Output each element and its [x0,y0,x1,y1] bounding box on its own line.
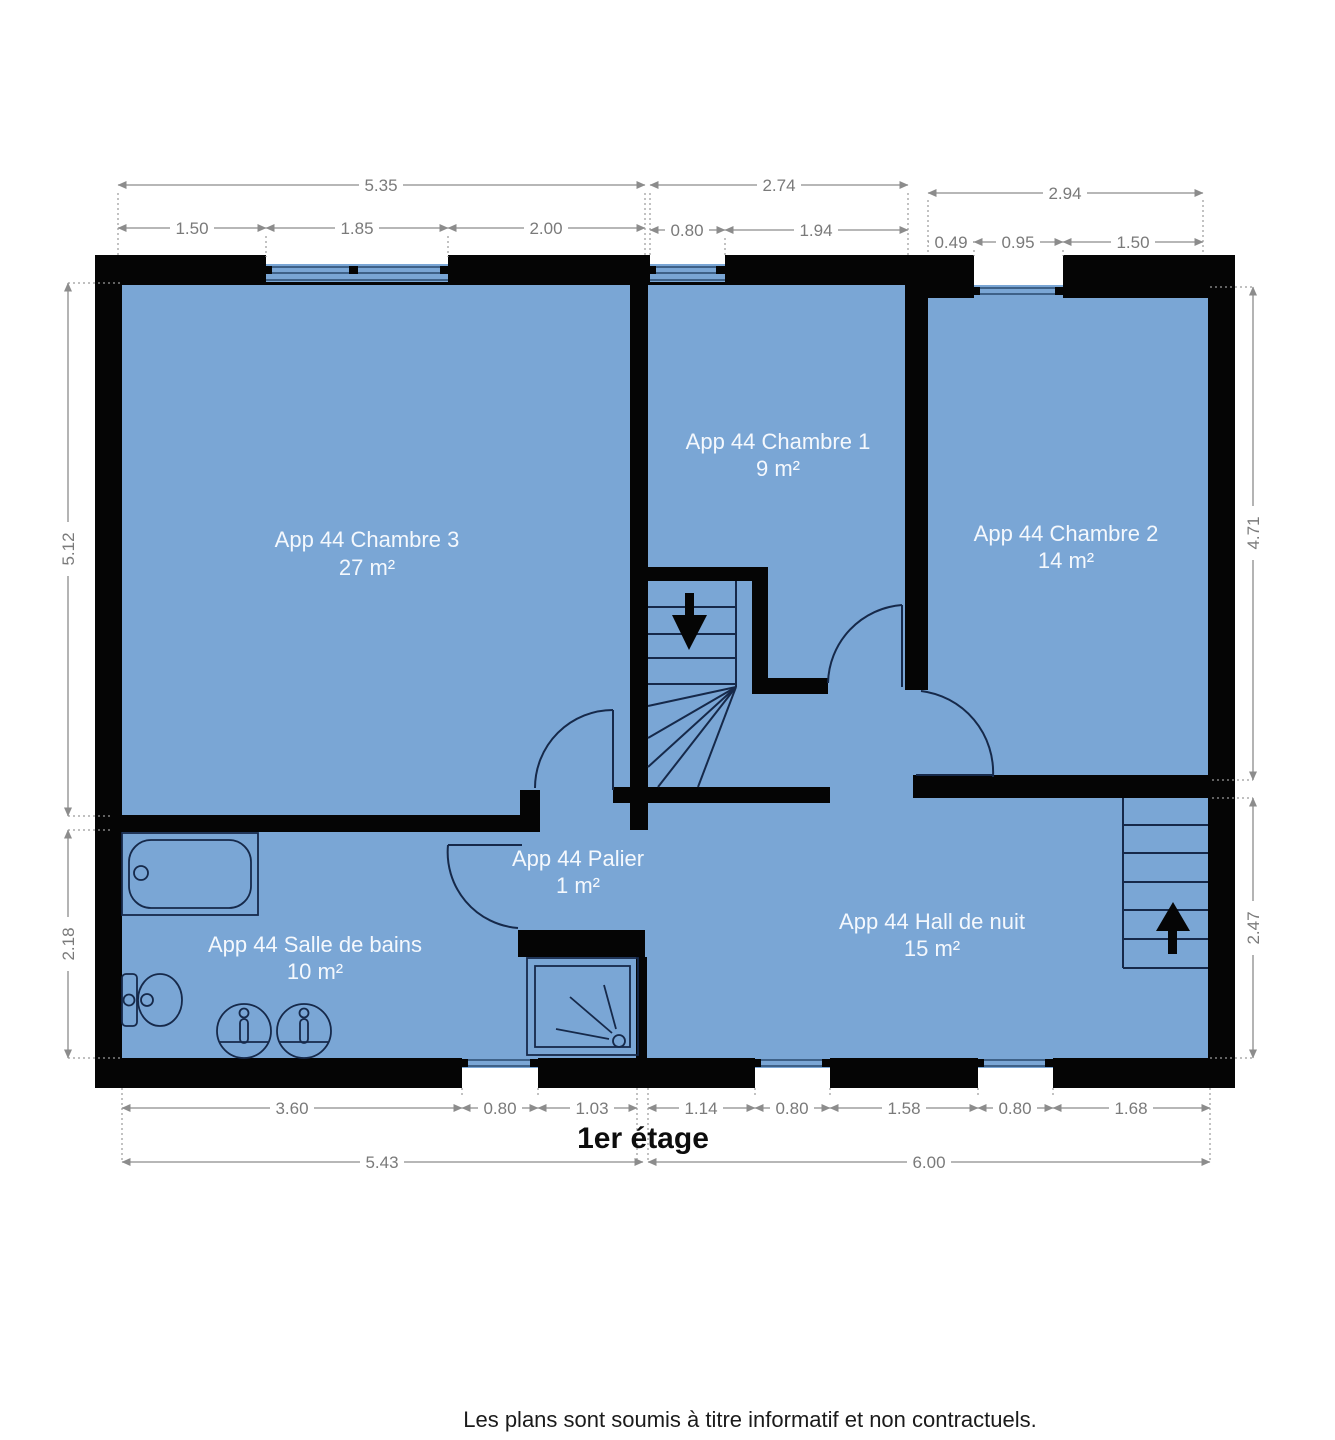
room-label-chambre2-name: App 44 Chambre 2 [974,521,1159,546]
page-title: 1er étage [577,1122,709,1155]
window-chambre2-top [971,255,1064,298]
floor-plan-page: 5.35 2.74 2.94 1.50 1.85 2.00 0.80 1.94 … [0,0,1335,1440]
dim-label: 5.43 [365,1153,398,1172]
dim-label: 1.03 [575,1099,608,1118]
dim-label: 5.12 [59,532,78,565]
dim-label: 1.68 [1114,1099,1147,1118]
dim-label: 0.80 [483,1099,516,1118]
dim-label: 2.94 [1048,184,1081,203]
room-label-chambre1-area: 9 m² [756,456,800,481]
window-hall-bottom-right [975,1058,1054,1088]
dim-label: 0.49 [934,233,967,252]
dim-label: 3.60 [275,1099,308,1118]
dim-label: 4.71 [1244,516,1263,549]
dim-label: 1.85 [340,219,373,238]
room-label-chambre2-area: 14 m² [1038,548,1094,573]
room-label-palier-name: App 44 Palier [512,846,644,871]
dim-label: 1.94 [799,221,832,240]
window-bathroom-bottom [459,1058,539,1088]
dim-label: 1.50 [1116,233,1149,252]
room-label-sdb-area: 10 m² [287,959,343,984]
room-label-hall-name: App 44 Hall de nuit [839,909,1025,934]
dim-label: 1.50 [175,219,208,238]
dim-label: 2.00 [529,219,562,238]
dim-label: 0.95 [1001,233,1034,252]
dim-label: 0.80 [670,221,703,240]
dim-label: 1.14 [684,1099,717,1118]
window-chambre3-top [263,255,449,282]
room-label-chambre3-name: App 44 Chambre 3 [275,527,460,552]
dim-label: 0.80 [775,1099,808,1118]
dim-label: 6.00 [912,1153,945,1172]
dim-label: 5.35 [364,176,397,195]
room-label-sdb-name: App 44 Salle de bains [208,932,422,957]
dim-label: 1.58 [887,1099,920,1118]
window-hall-bottom-left [752,1058,831,1088]
dim-label: 0.80 [998,1099,1031,1118]
dim-label: 2.74 [762,176,795,195]
dim-label: 2.18 [59,927,78,960]
room-label-palier-area: 1 m² [556,873,600,898]
window-chambre1-top [647,255,725,282]
disclaimer-text: Les plans sont soumis à titre informatif… [463,1407,1037,1432]
room-label-chambre1-name: App 44 Chambre 1 [686,429,871,454]
floor-area [100,260,1230,1080]
floor-plan: 5.35 2.74 2.94 1.50 1.85 2.00 0.80 1.94 … [0,0,1335,1440]
room-label-hall-area: 15 m² [904,936,960,961]
room-label-chambre3-area: 27 m² [339,555,395,580]
dim-label: 2.47 [1244,911,1263,944]
